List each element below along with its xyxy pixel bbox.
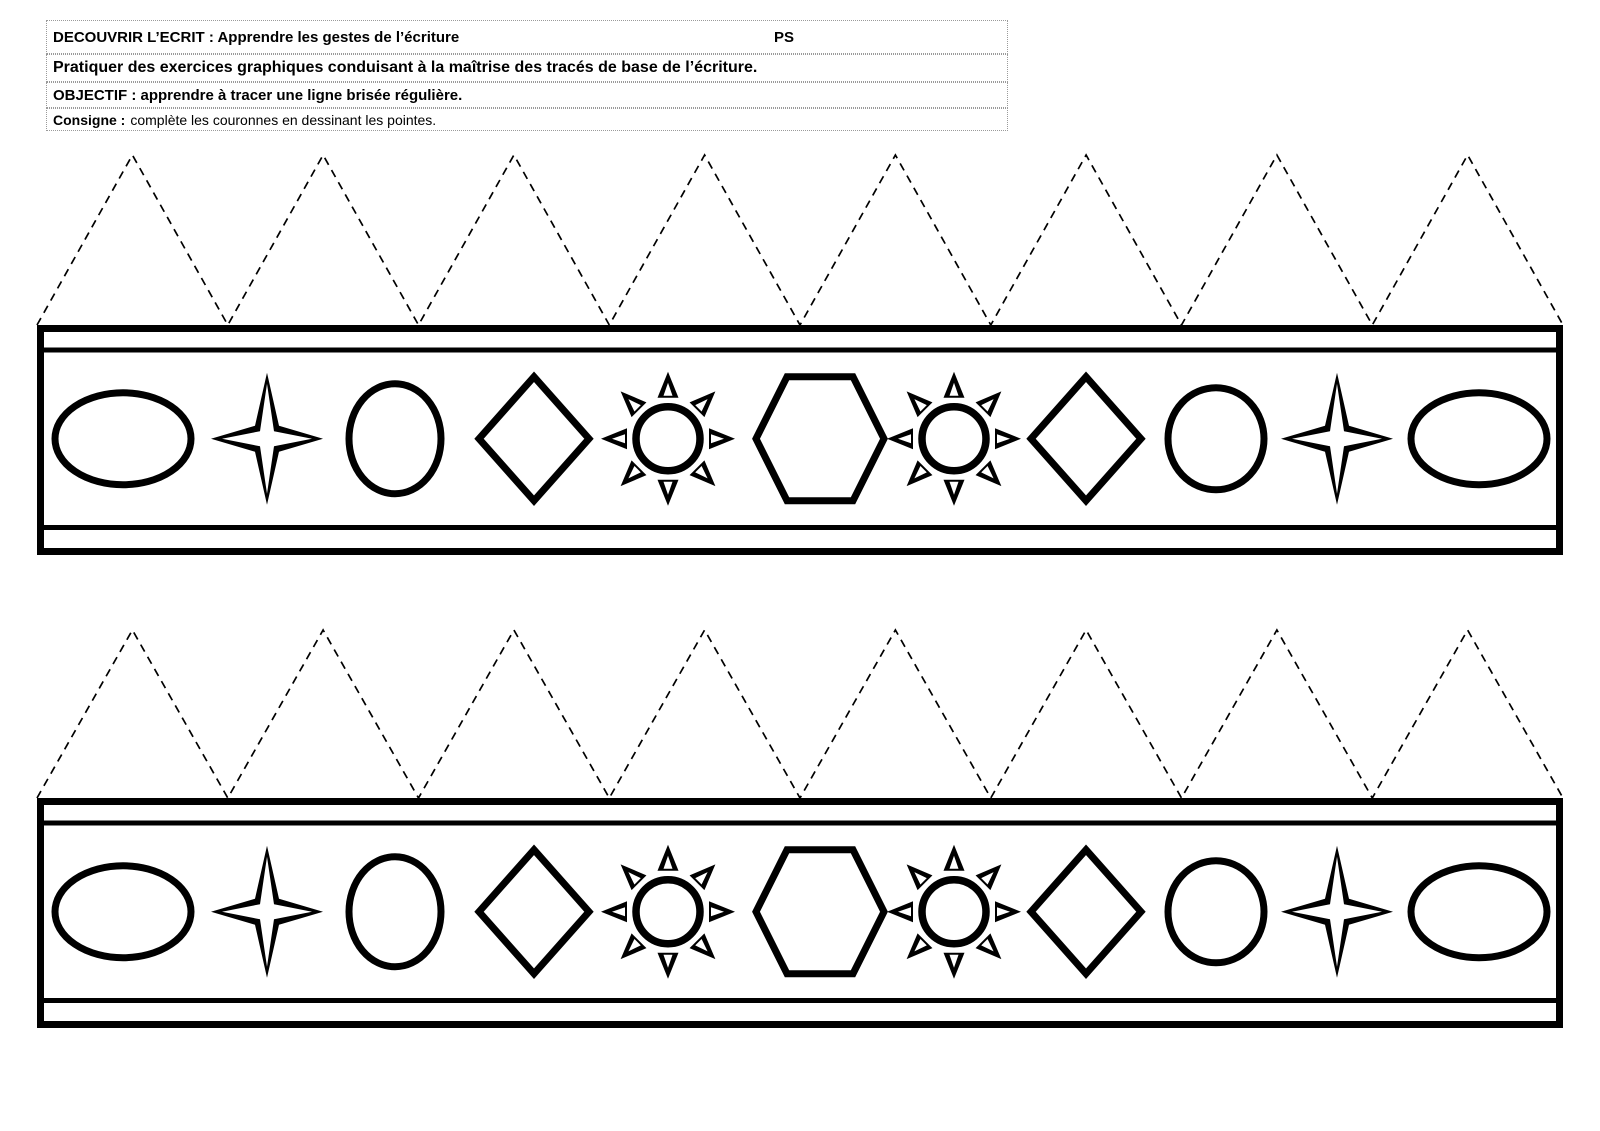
worksheet-page: DECOUVRIR L’ECRIT : Apprendre les gestes… [0, 0, 1600, 1131]
crown-points-zigzag-dashed [37, 630, 1563, 798]
objective-text: OBJECTIF : apprendre à tracer une ligne … [53, 87, 462, 104]
consigne-label: Consigne : [53, 112, 125, 128]
header-row-objective: OBJECTIF : apprendre à tracer une ligne … [46, 82, 1008, 108]
domain-title: DECOUVRIR L’ECRIT : Apprendre les gestes… [53, 29, 459, 46]
header-row-competence: Pratiquer des exercices graphiques condu… [46, 54, 1008, 82]
header-row-consigne: Consigne : complète les couronnes en des… [46, 108, 1008, 131]
header-info-table: DECOUVRIR L’ECRIT : Apprendre les gestes… [46, 20, 1008, 131]
consigne-text: complète les couronnes en dessinant les … [130, 112, 436, 128]
crown-template-1 [0, 140, 1600, 570]
header-row-domain: DECOUVRIR L’ECRIT : Apprendre les gestes… [46, 20, 1008, 54]
crown-points-zigzag-dashed [37, 155, 1563, 325]
crown-template-2 [0, 615, 1600, 1040]
level-tag: PS [774, 21, 794, 53]
competence-text: Pratiquer des exercices graphiques condu… [53, 59, 757, 77]
